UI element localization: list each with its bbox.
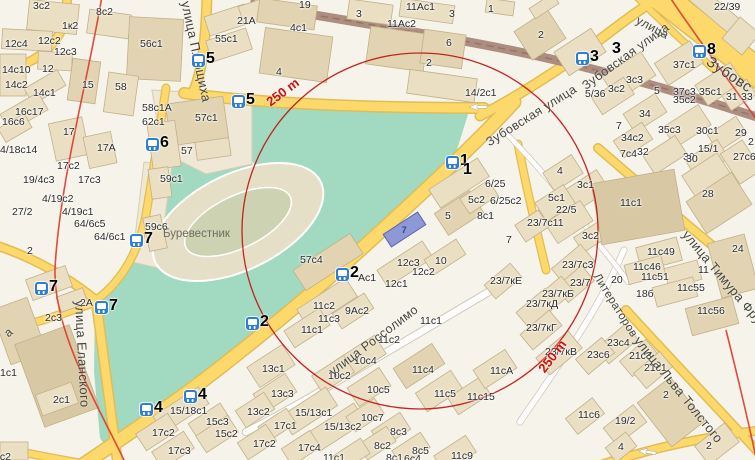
building-label: 1 xyxy=(488,4,494,15)
building-label: 12 xyxy=(42,64,54,75)
building-label: 17с2 xyxy=(253,439,276,450)
bus-stop-number[interactable]: 7 xyxy=(109,298,118,314)
building-label: 35с2 xyxy=(673,95,696,106)
bus-stop-icon[interactable] xyxy=(576,52,589,65)
building-label: 3с3 xyxy=(626,75,643,86)
building-label: 17с2 xyxy=(57,161,80,172)
building-label: 2 xyxy=(426,58,432,69)
building-label: 8с2 xyxy=(96,7,113,18)
building-label: 17 xyxy=(63,127,75,138)
bus-stop-icon[interactable] xyxy=(336,268,349,281)
building-label: 15/18с1 xyxy=(170,406,207,417)
building-label: 14с10 xyxy=(2,65,31,76)
building-label: 56с1 xyxy=(140,39,163,50)
building-label: 23с4 xyxy=(607,338,630,349)
building-label: 11с51 xyxy=(641,272,669,283)
building-label: 11с1 xyxy=(420,316,442,327)
building-label: 37с1 xyxy=(673,60,696,71)
building-label: 11Ас2 xyxy=(387,19,416,30)
building-label: 7с4 xyxy=(620,149,637,160)
bus-stop-icon[interactable] xyxy=(693,45,706,58)
building-label: 3с2 xyxy=(608,84,625,95)
building-label: 11сА xyxy=(490,366,513,377)
building-label: 15/1 xyxy=(698,144,718,155)
building-label: 17А xyxy=(97,143,116,154)
building-label: 11с5 xyxy=(434,389,456,400)
building-label: 12с2 xyxy=(38,36,61,47)
building-label: 9Ас2 xyxy=(345,306,369,317)
building-label: 11с1 xyxy=(620,198,642,209)
building-label: 14с2 xyxy=(5,80,28,91)
building-label: 17с1 xyxy=(274,421,297,432)
building-label: 23с6 xyxy=(587,350,610,361)
building-label: 11с55 xyxy=(677,283,705,294)
bus-stop-number[interactable]: 3 xyxy=(612,41,621,57)
building-label: 22/39 xyxy=(714,2,740,13)
building-label: 11с49 xyxy=(647,247,675,258)
building-label: 2с3 xyxy=(45,313,62,324)
bus-stop-number[interactable]: 2 xyxy=(260,314,269,330)
building-label: 11с56 xyxy=(697,306,725,317)
building-label: 11с6 xyxy=(578,410,600,421)
building-label: 20 xyxy=(611,275,623,286)
building-label: 2 xyxy=(663,390,669,401)
building-label: 6/25 xyxy=(485,179,505,190)
building-label: 28 xyxy=(702,189,714,200)
building-label: 11с9 xyxy=(451,451,473,460)
building-label: 19 xyxy=(299,0,311,11)
building-label: 16с6 xyxy=(2,117,25,128)
bus-stop-number[interactable]: 2 xyxy=(350,265,359,281)
building-label: 57с1 xyxy=(195,113,218,124)
building-label: 5 xyxy=(654,86,660,97)
bus-stop-icon[interactable] xyxy=(35,282,48,295)
building-label: 6 xyxy=(446,38,452,49)
building-label: 11с3 xyxy=(318,314,340,325)
building-label: 3с2 xyxy=(582,231,599,242)
building-label: 8с3 xyxy=(390,427,407,438)
building-label: 8с1 xyxy=(386,453,403,460)
building-label: 1к2 xyxy=(62,21,78,32)
bus-stop-number[interactable]: 7 xyxy=(144,231,153,247)
building-label: 14/2с1 xyxy=(465,88,497,99)
building-label: 4 xyxy=(276,67,282,78)
building-label: 27с6 xyxy=(733,152,755,163)
building-label: 32 xyxy=(637,147,649,158)
building-label: 18б xyxy=(636,289,654,300)
building-label: 6/25с2 xyxy=(490,196,522,207)
building-label: 34с2 xyxy=(621,133,644,144)
bus-stop-icon[interactable] xyxy=(95,301,108,314)
bus-stop-number[interactable]: 4 xyxy=(198,387,207,403)
stadium-label: Буревестник xyxy=(163,229,230,241)
building-label: 23/7кД xyxy=(526,299,558,310)
selected-building-label: 7 xyxy=(402,226,407,236)
building-label: 4 xyxy=(618,442,624,453)
building-label: 30 xyxy=(686,154,698,165)
building-label: 4 xyxy=(557,166,563,177)
building-label: 30с1 xyxy=(696,126,719,137)
building-label: 58 xyxy=(115,82,127,93)
building-label: 3 xyxy=(356,9,362,20)
building-label: 15/13с1 xyxy=(295,408,332,419)
map-canvas[interactable]: 3с28с21к212с412с212с31214с1014с214с11558… xyxy=(0,0,755,460)
building-label: 15с3 xyxy=(206,417,229,428)
building-label: 22/5 xyxy=(556,205,576,216)
building-label: 14с1 xyxy=(33,88,56,99)
building-label: 4/18с14 xyxy=(0,145,37,156)
building-label: 12с2 xyxy=(412,267,435,278)
building-label: 5 xyxy=(445,211,451,222)
building-footprint xyxy=(366,26,429,72)
building-label: 11Ас1 xyxy=(406,2,435,13)
building-label: 5с1 xyxy=(548,193,565,204)
building-label: 11с4 xyxy=(412,365,434,376)
building-label: 64/6с1 xyxy=(94,232,126,243)
building-label: 29 xyxy=(735,128,747,139)
building-label: 3с2 xyxy=(33,1,50,12)
building-label: 24 xyxy=(732,244,744,255)
building-label: 34 xyxy=(639,109,651,120)
building-label: 4/19с2 xyxy=(42,194,74,205)
building-label: 64/6с5 xyxy=(74,219,106,230)
building-label: 2с1 xyxy=(53,395,70,406)
bus-stop-icon[interactable] xyxy=(146,138,159,151)
building-label: 17с3 xyxy=(168,446,191,457)
building-label: 57с4 xyxy=(300,255,323,266)
building-label: 2 xyxy=(538,30,544,41)
building-label: 4с1 xyxy=(290,23,307,34)
building-label: 7 xyxy=(616,121,622,132)
building-label: 2с2 xyxy=(0,452,11,460)
bus-stop-icon[interactable] xyxy=(130,234,143,247)
building-label: 11с1 xyxy=(323,453,345,460)
building-label: 21А xyxy=(237,16,256,27)
bus-stop-number[interactable]: 5 xyxy=(246,92,255,108)
building-label: 4/19с1 xyxy=(62,207,94,218)
building-label: 6с4 xyxy=(404,454,421,460)
bus-stop-number[interactable]: 4 xyxy=(154,400,163,416)
building-label: 8с1 xyxy=(477,211,494,222)
building-label: 13с3 xyxy=(271,389,294,400)
building-label: 10с5 xyxy=(367,385,390,396)
building-label: 35с3 xyxy=(658,125,681,136)
building-label: 31 xyxy=(726,92,738,103)
building-label: 59с1 xyxy=(160,174,183,185)
building-label: 8с2 xyxy=(374,441,391,452)
building-label: 12с1 xyxy=(385,279,408,290)
building-label: 3с1 xyxy=(577,180,594,191)
building-label: 11с2 xyxy=(313,301,335,312)
building-label: 11с1 xyxy=(301,325,323,336)
building-label: 15с2 xyxy=(215,429,238,440)
building-label: 10с7 xyxy=(361,413,384,424)
building-label: 19/4с3 xyxy=(23,175,55,186)
bus-stop-number[interactable]: 1 xyxy=(463,162,472,178)
building-label: 23/7кГ xyxy=(526,323,557,334)
building-label: 23/7с3 xyxy=(562,260,594,271)
building-label: 10 xyxy=(435,256,447,267)
building-label: 13с1 xyxy=(262,364,285,375)
bus-stop-number[interactable]: 5 xyxy=(206,51,215,67)
building-label: 15 xyxy=(82,80,94,91)
building-label: 13с2 xyxy=(247,407,270,418)
bus-stop-icon[interactable] xyxy=(232,95,245,108)
bus-stop-icon[interactable] xyxy=(140,403,153,416)
building-label: 62с1 xyxy=(142,117,165,128)
bus-stop-number[interactable]: 7 xyxy=(49,279,58,295)
building-label: 7 xyxy=(506,235,512,246)
building-label: 57 xyxy=(181,146,193,157)
building-label: 5с2 xyxy=(468,195,485,206)
building-label: 2 xyxy=(27,246,33,257)
building-label: 12с3 xyxy=(54,47,77,58)
bus-stop-number[interactable]: 8 xyxy=(707,42,716,58)
bus-stop-number[interactable]: 6 xyxy=(160,135,169,151)
bus-stop-icon[interactable] xyxy=(192,54,205,67)
building-label: 23/7с11 xyxy=(527,218,564,229)
building-label: 3 xyxy=(449,9,455,20)
bus-stop-icon[interactable] xyxy=(184,390,197,403)
building-footprint xyxy=(103,72,138,116)
building-footprint xyxy=(259,27,333,82)
building-label: 15/13с2 xyxy=(324,422,361,433)
building-label: 23/7кЕ xyxy=(490,276,522,287)
bus-stop-number[interactable]: 3 xyxy=(590,49,599,65)
building-label: 23/7 xyxy=(570,278,590,289)
building-label: 1с1 xyxy=(0,368,17,379)
building-label: 27/2 xyxy=(12,207,32,218)
building-label: 2 xyxy=(748,137,754,148)
bus-stop-icon[interactable] xyxy=(246,317,259,330)
building-label: 35с1 xyxy=(699,87,722,98)
bus-stop-icon[interactable] xyxy=(446,156,459,169)
building-label: 19/2 xyxy=(615,416,635,427)
building-label: 11с15 xyxy=(467,392,495,403)
building-label: 17с4 xyxy=(298,443,321,454)
building-label: Ас1 xyxy=(358,273,376,284)
building-label: 12с4 xyxy=(5,39,28,50)
building-label: 58с1А xyxy=(142,103,172,114)
building-label: 17с3 xyxy=(78,175,101,186)
building-label: 55с1 xyxy=(215,34,238,45)
building-label: 17с2 xyxy=(152,428,175,439)
